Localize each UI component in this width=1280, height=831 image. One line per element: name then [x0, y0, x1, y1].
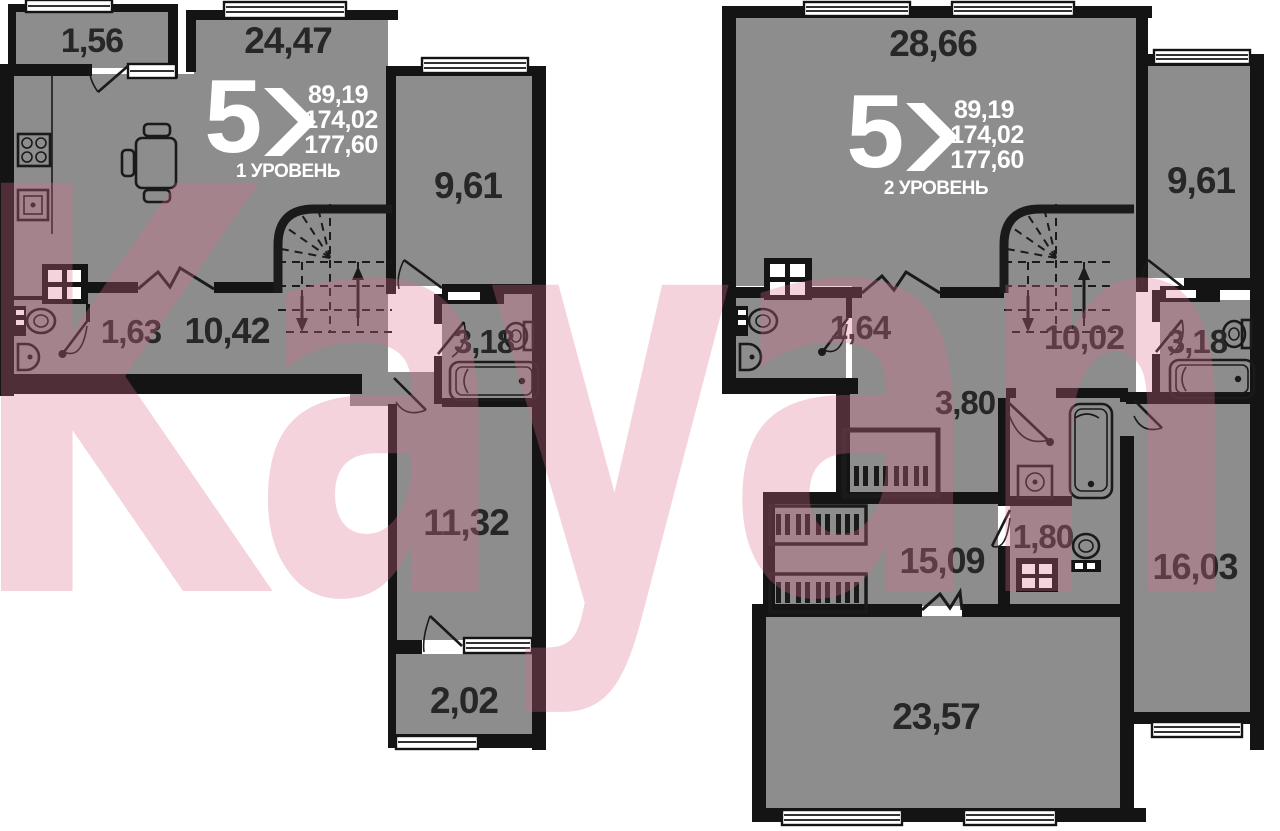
level-label: 2 УРОВЕНЬ [884, 178, 988, 199]
vent-shaft-icon [42, 264, 88, 304]
window-icon [128, 64, 176, 78]
plan1-room-fills [12, 10, 532, 736]
area-label-loggia: 2,02 [430, 680, 498, 721]
area-label-bath: 3,18 [1167, 323, 1228, 360]
window-icon [952, 2, 1074, 16]
floorplan-canvas: 1,56 24,47 9,61 1,63 10,42 3,18 11,32 2,… [0, 0, 1280, 831]
room-kitchen-area [14, 74, 194, 286]
area-label-living: 28,66 [889, 23, 977, 64]
window-icon [422, 58, 528, 73]
area-label-bedroom2: 16,03 [1152, 546, 1237, 587]
window-icon [464, 638, 532, 653]
area-label-hall: 10,42 [184, 310, 269, 351]
window-icon [1154, 50, 1250, 64]
area-label-bath: 3,18 [454, 323, 515, 360]
area-label-hall: 10,02 [1044, 319, 1124, 357]
area-label-living2: 23,57 [892, 696, 980, 737]
stat-area-3: 177,60 [304, 131, 377, 159]
area-label-living: 24,47 [244, 20, 332, 61]
window-icon [782, 810, 902, 825]
area-label-bath2: 1,80 [1013, 518, 1073, 555]
area-label-bedroom: 9,61 [1167, 160, 1235, 201]
area-label-bedroom: 9,61 [434, 165, 502, 206]
area-label-room: 11,32 [423, 502, 509, 543]
vent-shaft-icon [1016, 558, 1058, 592]
window-icon [224, 2, 346, 18]
logo-number: 5 [204, 59, 261, 175]
area-label-balcony: 1,56 [61, 22, 123, 60]
stat-area-2: 174,02 [304, 106, 377, 134]
stat-area-2: 174,02 [950, 121, 1023, 149]
area-label-hall2: 3,80 [935, 384, 995, 421]
level-label: 1 УРОВЕНЬ [236, 161, 340, 182]
area-label-wc: 1,64 [830, 309, 892, 346]
vent-shaft-icon [764, 258, 812, 300]
window-icon [396, 736, 478, 749]
stat-area-1: 89,19 [954, 96, 1014, 124]
stat-area-1: 89,19 [308, 81, 368, 109]
window-icon [1152, 722, 1242, 737]
room-passage [350, 372, 436, 406]
plan-level-2: 28,66 9,61 1,64 10,02 3,18 3,80 15,09 1,… [718, 0, 1280, 831]
window-icon [964, 810, 1056, 825]
area-label-wc: 1,63 [101, 313, 162, 350]
duct-icon [442, 288, 504, 304]
logo-number: 5 [846, 74, 903, 190]
area-label-room: 15,09 [899, 540, 984, 581]
stat-area-3: 177,60 [950, 146, 1023, 174]
duct-icon [1160, 286, 1220, 302]
plan-level-1: 1,56 24,47 9,61 1,63 10,42 3,18 11,32 2,… [0, 0, 565, 831]
window-icon [804, 2, 910, 16]
window-icon [26, 0, 112, 12]
